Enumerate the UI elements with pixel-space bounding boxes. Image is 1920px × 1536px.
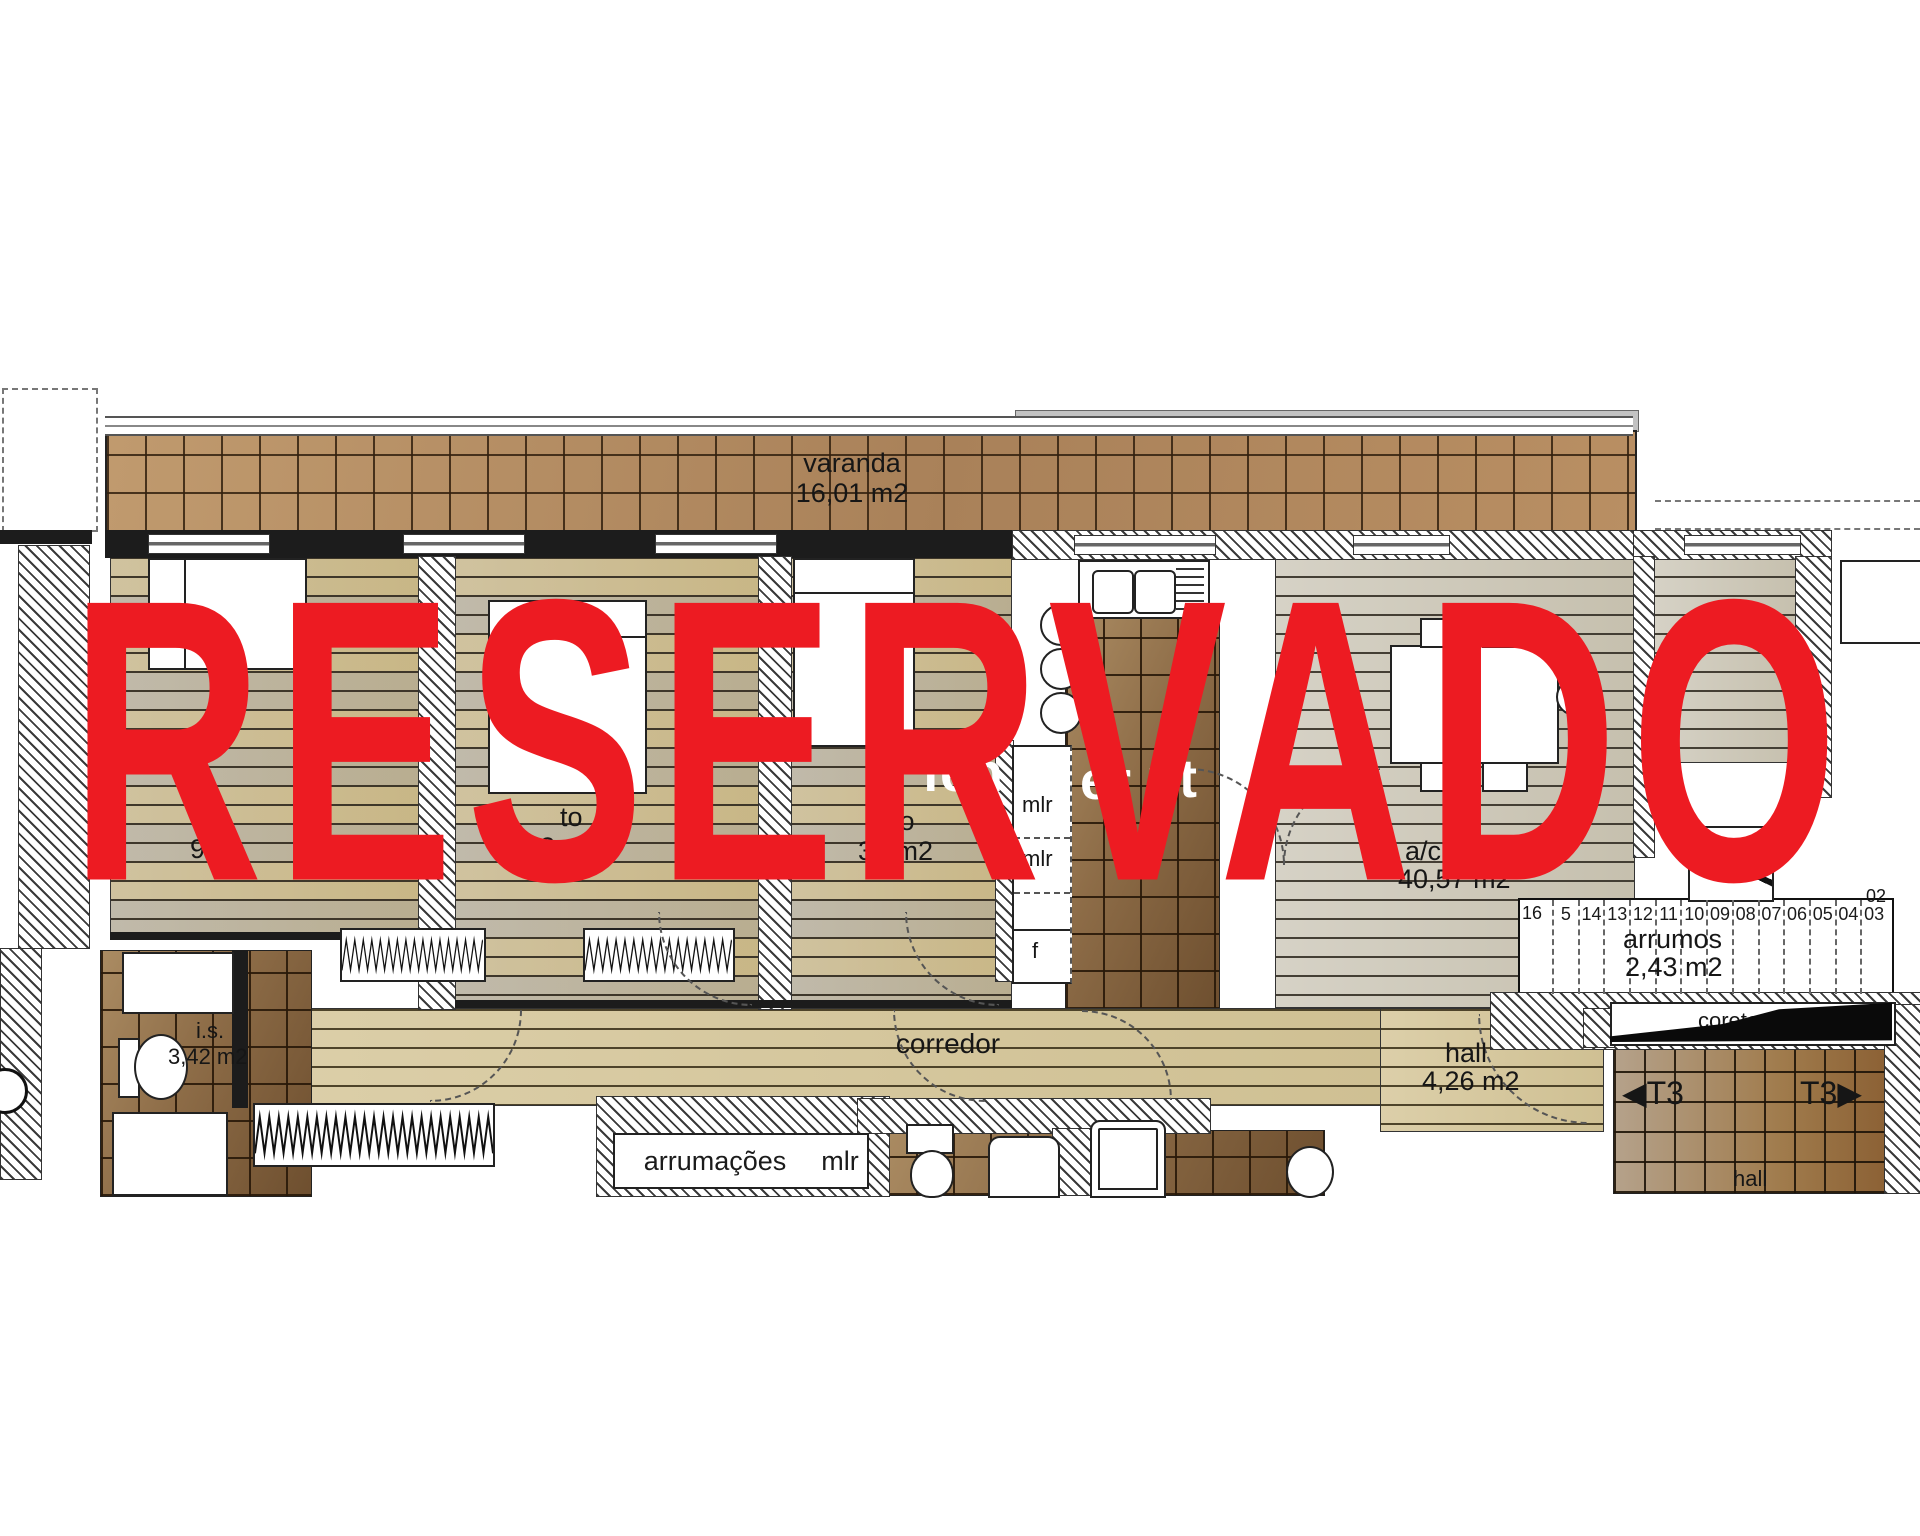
dashed-projection-line-1 [1655, 500, 1920, 502]
stair-number-16: 16 [1522, 903, 1542, 924]
living-room-area: 40,57 m2 [1398, 864, 1511, 895]
mlr-label: mlr [821, 1146, 858, 1177]
bedroom1-area: 9,03 [190, 834, 243, 865]
closet-mlr1-label: mlr [1022, 792, 1053, 818]
stair-tread: 05 [1809, 900, 1835, 994]
unit-marker-left: ◀T3 [1622, 1074, 1684, 1112]
living-room-label: a/c [1405, 836, 1441, 867]
site-watermark-fragment-3: pt [1146, 748, 1197, 810]
right-room-floor [1653, 556, 1797, 763]
hall-area: 4,26 m2 [1422, 1066, 1520, 1097]
balcony-label: varanda [803, 448, 901, 479]
dining-chair-bottom-1 [1420, 762, 1466, 792]
arrumacoes-box: arrumações [613, 1133, 817, 1189]
kitchen-drainboard [1176, 568, 1204, 612]
stool-3 [1040, 692, 1082, 734]
toilet2-bowl [910, 1150, 954, 1198]
closet-f-label: f [1032, 938, 1038, 964]
living-door-arc-1 [1188, 768, 1285, 865]
facade-wall-left [105, 530, 1012, 558]
bathtub-2 [1090, 1120, 1166, 1198]
closet-divider [1014, 929, 1070, 931]
arrumacoes-label: arrumações [644, 1146, 787, 1177]
dining-chair-top-2 [1482, 618, 1528, 648]
left-lower-wall [0, 948, 42, 1180]
kitchen-sink-1 [1092, 570, 1134, 614]
wall-bed2-bed3 [758, 556, 792, 1010]
bedroom1-window [148, 534, 270, 554]
stair-tread: 07 [1758, 900, 1784, 994]
bed-pillow [795, 560, 913, 594]
bedroom2-label: to [560, 802, 583, 833]
storage-label: arrumos [1623, 924, 1722, 955]
left-wall-segment [0, 530, 92, 544]
arrow-right-icon: ▶ [1837, 1075, 1862, 1111]
bathroom1-label: i.s. [196, 1018, 224, 1044]
living-window [1353, 535, 1450, 555]
stool-2 [1040, 648, 1082, 690]
bathroom1-area: 3,42 m2 [168, 1044, 248, 1070]
stool-1 [1040, 604, 1082, 646]
dining-chair-top-1 [1420, 618, 1466, 648]
dining-chair-side [1556, 678, 1594, 716]
closet-divider [1014, 837, 1070, 839]
dining-table [1390, 645, 1559, 764]
stair-tread: 5 [1552, 900, 1578, 994]
bedroom2-window [403, 534, 525, 554]
stair-tread: 03 [1860, 900, 1886, 994]
hall-label: hall [1445, 1038, 1487, 1069]
stair-tread: 14 [1578, 900, 1604, 994]
right-window-return [1840, 560, 1920, 644]
stair-number-02: 02 [1866, 886, 1886, 907]
bathroom-wall [232, 950, 248, 1108]
bathroom1-sink [122, 952, 234, 1014]
balcony-railing [105, 416, 1633, 436]
site-watermark-fragment-1: feh [922, 742, 1003, 804]
floor-plan-image: varanda 16,01 m2 9,03 to 3 m2 arto 33 m2 [0, 0, 1920, 1536]
stair-hall-label: hall [1733, 1166, 1767, 1192]
closet-divider [1014, 892, 1070, 894]
bedroom1-bed [148, 558, 307, 670]
wardrobe-3 [253, 1103, 495, 1167]
toilet3-bowl [1286, 1146, 1334, 1198]
site-watermark-fragment-2: er [1080, 750, 1131, 812]
mlr-box: mlr [813, 1133, 869, 1189]
adjacent-structure-outline [2, 388, 98, 532]
facade-wall-right [1012, 530, 1635, 560]
closet-mlr2-label: mlr [1022, 846, 1053, 872]
dining-chair-bottom-2 [1482, 762, 1528, 792]
right-room-window [1684, 535, 1801, 555]
arrow-left-icon: ◀ [1622, 1075, 1647, 1111]
stair-tread: 08 [1732, 900, 1758, 994]
bedroom3-label: arto [868, 806, 915, 837]
kitchen-counter [1078, 560, 1210, 619]
left-exterior-wall [18, 545, 90, 949]
bedroom3-window [655, 534, 777, 554]
right-room-wall [1795, 556, 1832, 798]
bedroom2-area: 3 m2 [540, 832, 600, 863]
storage-area: 2,43 m2 [1625, 952, 1723, 983]
entry-door-leaf [112, 1112, 228, 1196]
bedroom3-bed [793, 558, 915, 747]
corridor-label: corredor [896, 1028, 1000, 1060]
stair-tread: 06 [1783, 900, 1809, 994]
kitchen-window [1074, 535, 1216, 555]
unit-label-left: T3 [1647, 1075, 1684, 1111]
bedroom2-bed [488, 600, 647, 794]
corridor-floor [240, 1008, 1382, 1106]
bathtub-1 [988, 1136, 1060, 1198]
wardrobe-1 [340, 928, 486, 982]
bedroom3-area: 33 m2 [858, 836, 933, 867]
bed-pillow [490, 602, 645, 638]
wall-living-rightroom [1633, 556, 1655, 858]
balcony-area: 16,01 m2 [796, 478, 909, 509]
washbasin [1688, 826, 1774, 902]
bed-pillow [150, 560, 186, 668]
kitchen-sink-2 [1134, 570, 1176, 614]
stair-tread: 04 [1835, 900, 1861, 994]
unit-label-right: T3 [1800, 1075, 1837, 1111]
unit-marker-right: T3▶ [1800, 1074, 1862, 1112]
